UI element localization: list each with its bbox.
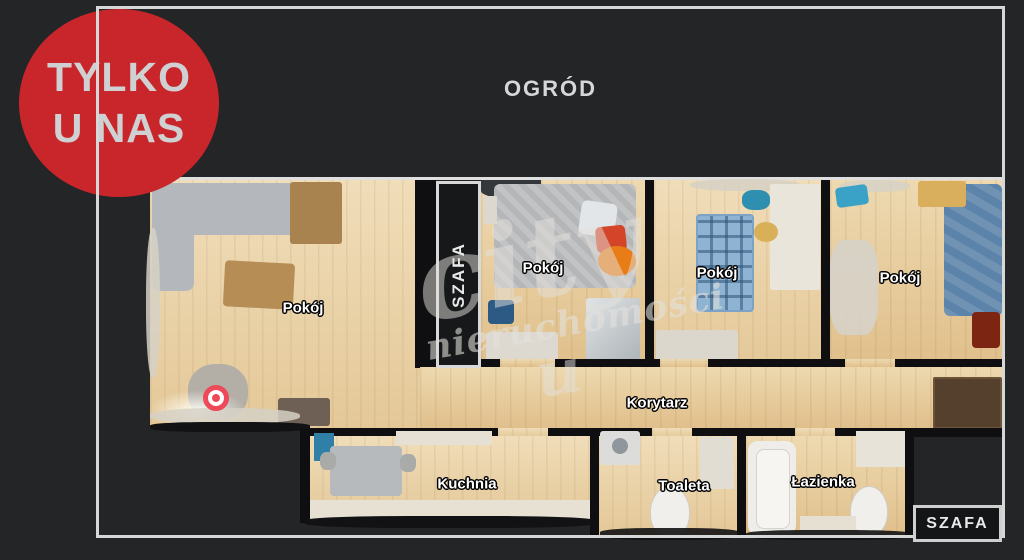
scan-edge (305, 516, 595, 528)
wall (737, 428, 746, 536)
only-with-us-badge: TYLKO U NAS (19, 9, 219, 197)
bedroom-desk (486, 332, 558, 362)
kids-shelf (770, 184, 820, 290)
scan-edge (600, 528, 740, 540)
listing-promo-image: TYLKO U NAS OGRÓD SZAFA (0, 0, 1024, 560)
wardrobe-box: SZAFA (913, 505, 1002, 542)
entrance-doormat (933, 377, 1002, 429)
pouf (754, 222, 778, 242)
kids-chair (742, 190, 770, 210)
label-room-bedroom: Pokój (523, 260, 564, 277)
scan-edge (746, 530, 911, 540)
badge-line1: TYLKO (47, 57, 191, 98)
label-room-living: Pokój (283, 300, 324, 317)
blanket-orange (598, 246, 636, 276)
wall (821, 180, 830, 366)
label-bathroom: Łazienka (791, 474, 854, 491)
door-gap (845, 359, 895, 367)
wall (300, 428, 310, 523)
red-chair (972, 312, 1000, 348)
kitchen-cabinets (396, 431, 492, 445)
chair (400, 454, 416, 472)
white-furniture (830, 240, 878, 335)
label-toilet: Toaleta (658, 478, 709, 495)
door-gap (660, 359, 708, 367)
scan-edge (150, 422, 310, 432)
wardrobe-strip: SZAFA (436, 181, 481, 368)
wardrobe-strip-label: SZAFA (449, 242, 469, 308)
corridor (420, 365, 1002, 428)
sideboard (290, 182, 342, 244)
garden-label: OGRÓD (96, 76, 1005, 102)
bath-cabinet (856, 431, 906, 467)
wall (590, 428, 599, 536)
label-kitchen: Kuchnia (437, 476, 496, 493)
nightstand (484, 196, 497, 224)
virtual-tour-marker-icon[interactable] (203, 385, 229, 411)
door-gap (500, 359, 555, 367)
label-room-right: Pokój (880, 270, 921, 287)
kitchen-table (330, 446, 402, 496)
bathtub-basin (756, 449, 790, 529)
label-corridor: Korytarz (627, 395, 688, 412)
chair (320, 452, 336, 470)
scan-debris (146, 228, 160, 378)
wall (415, 180, 436, 368)
wall (645, 180, 654, 366)
storage-bin (488, 300, 514, 324)
desk-yellow (918, 181, 966, 207)
wardrobe-box-label: SZAFA (926, 515, 988, 533)
play-rug (696, 214, 754, 312)
label-room-kids: Pokój (697, 265, 738, 282)
badge-line2: U NAS (53, 108, 186, 149)
wardrobe-mirror (586, 298, 640, 360)
washing-machine-drum (612, 438, 628, 454)
